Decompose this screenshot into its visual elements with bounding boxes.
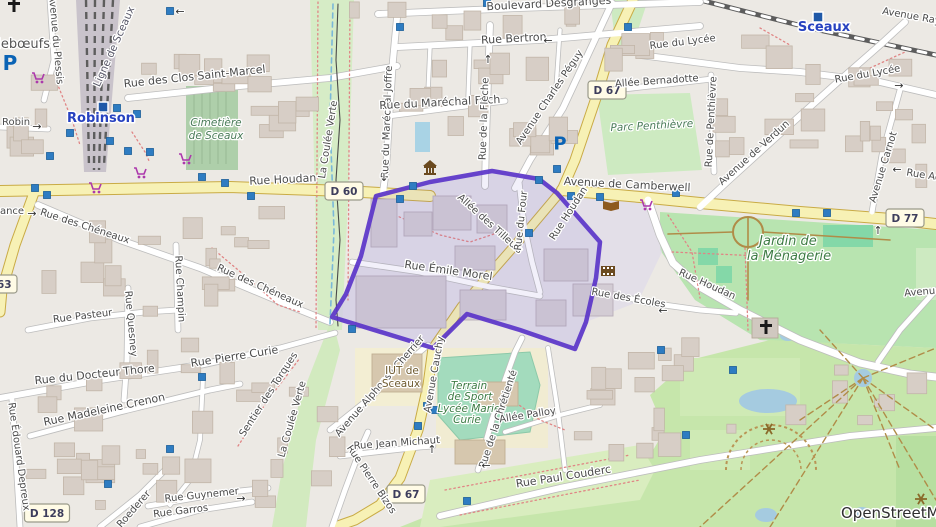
map-node-marker bbox=[526, 230, 533, 237]
building bbox=[220, 362, 235, 384]
oneway-arrow: ↓ bbox=[379, 171, 388, 184]
oneway-arrow: → bbox=[236, 492, 245, 505]
building bbox=[729, 138, 744, 155]
building bbox=[716, 141, 730, 157]
building bbox=[57, 459, 81, 474]
building bbox=[138, 236, 160, 244]
map-node-marker bbox=[222, 180, 229, 187]
swimming-pool bbox=[415, 122, 430, 152]
oneway-arrow: → bbox=[27, 207, 36, 220]
building bbox=[183, 218, 202, 239]
map-node-marker bbox=[167, 8, 174, 15]
oneway-arrow: ← bbox=[543, 34, 552, 47]
building bbox=[26, 469, 46, 478]
map-node-marker bbox=[683, 432, 690, 439]
oneway-arrow: → bbox=[894, 79, 903, 92]
building bbox=[252, 480, 267, 496]
street-label: Sceaux bbox=[798, 20, 851, 35]
oneway-arrow: ← bbox=[658, 304, 667, 317]
oneway-arrow: ← bbox=[892, 163, 901, 176]
building bbox=[907, 373, 927, 394]
building bbox=[259, 206, 285, 219]
road bbox=[468, 44, 470, 98]
street-label: la Ménagerie bbox=[747, 249, 831, 264]
building bbox=[81, 460, 97, 480]
building bbox=[592, 367, 606, 389]
street-label: Cimetière bbox=[190, 117, 241, 129]
map-node-marker bbox=[349, 326, 356, 333]
building bbox=[766, 46, 792, 69]
street-label: de Sport bbox=[448, 391, 494, 403]
building bbox=[858, 416, 873, 425]
map-node-marker bbox=[107, 138, 114, 145]
building bbox=[654, 408, 665, 431]
building bbox=[635, 377, 654, 392]
building bbox=[181, 338, 198, 352]
building bbox=[296, 97, 318, 111]
street-label: Sceaux bbox=[382, 378, 420, 390]
building bbox=[895, 110, 912, 120]
map-node-marker bbox=[44, 192, 51, 199]
map-node-marker bbox=[125, 148, 132, 155]
street-label: de Sceaux bbox=[189, 130, 244, 142]
building bbox=[605, 48, 623, 71]
road-ref-badge: D 60 bbox=[325, 182, 363, 200]
map-node-marker bbox=[167, 446, 174, 453]
building bbox=[860, 121, 869, 141]
map-node-marker bbox=[397, 196, 404, 203]
map-node-marker bbox=[464, 498, 471, 505]
map-node-marker bbox=[47, 153, 54, 160]
building bbox=[796, 94, 814, 102]
building bbox=[388, 2, 406, 17]
road-ref-badge: D 77 bbox=[886, 209, 924, 227]
map-node-marker bbox=[824, 210, 831, 217]
building bbox=[63, 477, 84, 495]
map-node-marker bbox=[597, 194, 604, 201]
road-ref-text: D 77 bbox=[892, 213, 919, 225]
building bbox=[102, 446, 120, 465]
building bbox=[163, 457, 180, 474]
building bbox=[105, 266, 121, 286]
building bbox=[464, 11, 481, 30]
building bbox=[81, 262, 104, 282]
map-node-marker bbox=[793, 210, 800, 217]
building bbox=[235, 238, 249, 247]
street-label: illebœufs bbox=[0, 37, 50, 52]
building bbox=[835, 365, 849, 375]
building bbox=[801, 109, 825, 131]
building bbox=[662, 366, 683, 381]
building bbox=[786, 405, 806, 425]
building bbox=[205, 284, 218, 306]
road-ref-text: D 63 bbox=[0, 279, 11, 291]
building bbox=[446, 26, 463, 40]
map-node-marker bbox=[410, 183, 417, 190]
building bbox=[727, 424, 736, 433]
street-label: Robin bbox=[2, 117, 30, 128]
building bbox=[806, 64, 820, 84]
street-label: Jardin de bbox=[756, 234, 817, 249]
building bbox=[278, 102, 296, 123]
building bbox=[742, 35, 770, 48]
map-node-marker bbox=[730, 367, 737, 374]
svg-text:P: P bbox=[3, 51, 18, 75]
oneway-arrow: ↑ bbox=[427, 443, 436, 456]
map-canvas: PP D 60D 67D 67D 77D 63D 128 Boulevard D… bbox=[0, 0, 936, 527]
cinema-icon bbox=[601, 266, 615, 276]
building bbox=[490, 53, 510, 74]
road-ref-text: D 128 bbox=[30, 508, 64, 520]
parking-icon: P bbox=[553, 133, 566, 154]
road-ref-badge: D 63 bbox=[0, 275, 17, 293]
building bbox=[22, 140, 44, 154]
building bbox=[185, 459, 211, 483]
road-ref-text: D 60 bbox=[331, 186, 358, 198]
building bbox=[432, 60, 446, 77]
street-label: IUT de bbox=[385, 365, 419, 377]
building bbox=[248, 241, 269, 249]
jardin-lawn bbox=[698, 248, 718, 265]
road-ref-text: D 67 bbox=[393, 489, 420, 501]
svg-text:P: P bbox=[553, 133, 566, 154]
building bbox=[271, 459, 283, 477]
map-node-marker bbox=[397, 24, 404, 31]
parking-icon: P bbox=[3, 51, 18, 75]
building bbox=[251, 106, 278, 115]
map-node-marker bbox=[199, 174, 206, 181]
osm-attribution-link[interactable]: OpenStreetMap bbox=[841, 504, 936, 522]
building bbox=[143, 464, 158, 475]
building bbox=[526, 57, 549, 80]
building bbox=[330, 437, 346, 457]
map-node-marker bbox=[105, 481, 112, 488]
building bbox=[221, 227, 235, 235]
street-label: Curie bbox=[453, 414, 481, 426]
map-node-marker bbox=[554, 166, 561, 173]
map-viewport[interactable]: PP D 60D 67D 67D 77D 63D 128 Boulevard D… bbox=[0, 0, 936, 527]
map-node-marker bbox=[536, 177, 543, 184]
building bbox=[255, 496, 275, 508]
building bbox=[609, 444, 624, 461]
map-node-marker bbox=[199, 374, 206, 381]
map-node-marker bbox=[415, 423, 422, 430]
building bbox=[658, 433, 681, 457]
building bbox=[192, 411, 212, 433]
road bbox=[428, 47, 430, 92]
building bbox=[877, 102, 893, 111]
building bbox=[311, 471, 331, 486]
building bbox=[628, 352, 654, 369]
building bbox=[317, 407, 338, 422]
building bbox=[531, 136, 550, 153]
map-node-marker bbox=[32, 185, 39, 192]
building bbox=[574, 432, 592, 440]
building bbox=[912, 124, 926, 143]
building bbox=[349, 2, 359, 18]
building bbox=[432, 15, 447, 28]
map-node-marker bbox=[147, 149, 154, 156]
map-node-marker bbox=[248, 193, 255, 200]
building bbox=[790, 140, 818, 148]
building bbox=[870, 126, 880, 140]
building bbox=[248, 77, 271, 92]
map-node-marker bbox=[658, 347, 665, 354]
street-label: Robinson bbox=[67, 111, 135, 126]
building bbox=[143, 306, 158, 316]
oneway-arrow: ← bbox=[481, 459, 490, 472]
map-node-marker bbox=[625, 24, 632, 31]
building bbox=[448, 117, 464, 136]
oneway-arrow: → bbox=[32, 120, 41, 133]
building bbox=[54, 443, 74, 457]
building bbox=[637, 443, 653, 458]
oneway-arrow: ↑ bbox=[483, 53, 492, 66]
building bbox=[587, 391, 613, 400]
map-node-marker bbox=[67, 130, 74, 137]
building bbox=[42, 271, 56, 294]
building bbox=[142, 63, 157, 74]
building bbox=[682, 338, 699, 357]
oneway-arrow: ↑ bbox=[873, 224, 882, 237]
building bbox=[38, 397, 57, 413]
oneway-arrow: ← bbox=[175, 5, 184, 18]
building bbox=[213, 83, 235, 91]
street-label: ance bbox=[0, 206, 24, 217]
jardin-lawn bbox=[716, 266, 732, 283]
park-pond bbox=[755, 508, 777, 522]
building bbox=[96, 500, 106, 509]
building bbox=[136, 450, 145, 459]
